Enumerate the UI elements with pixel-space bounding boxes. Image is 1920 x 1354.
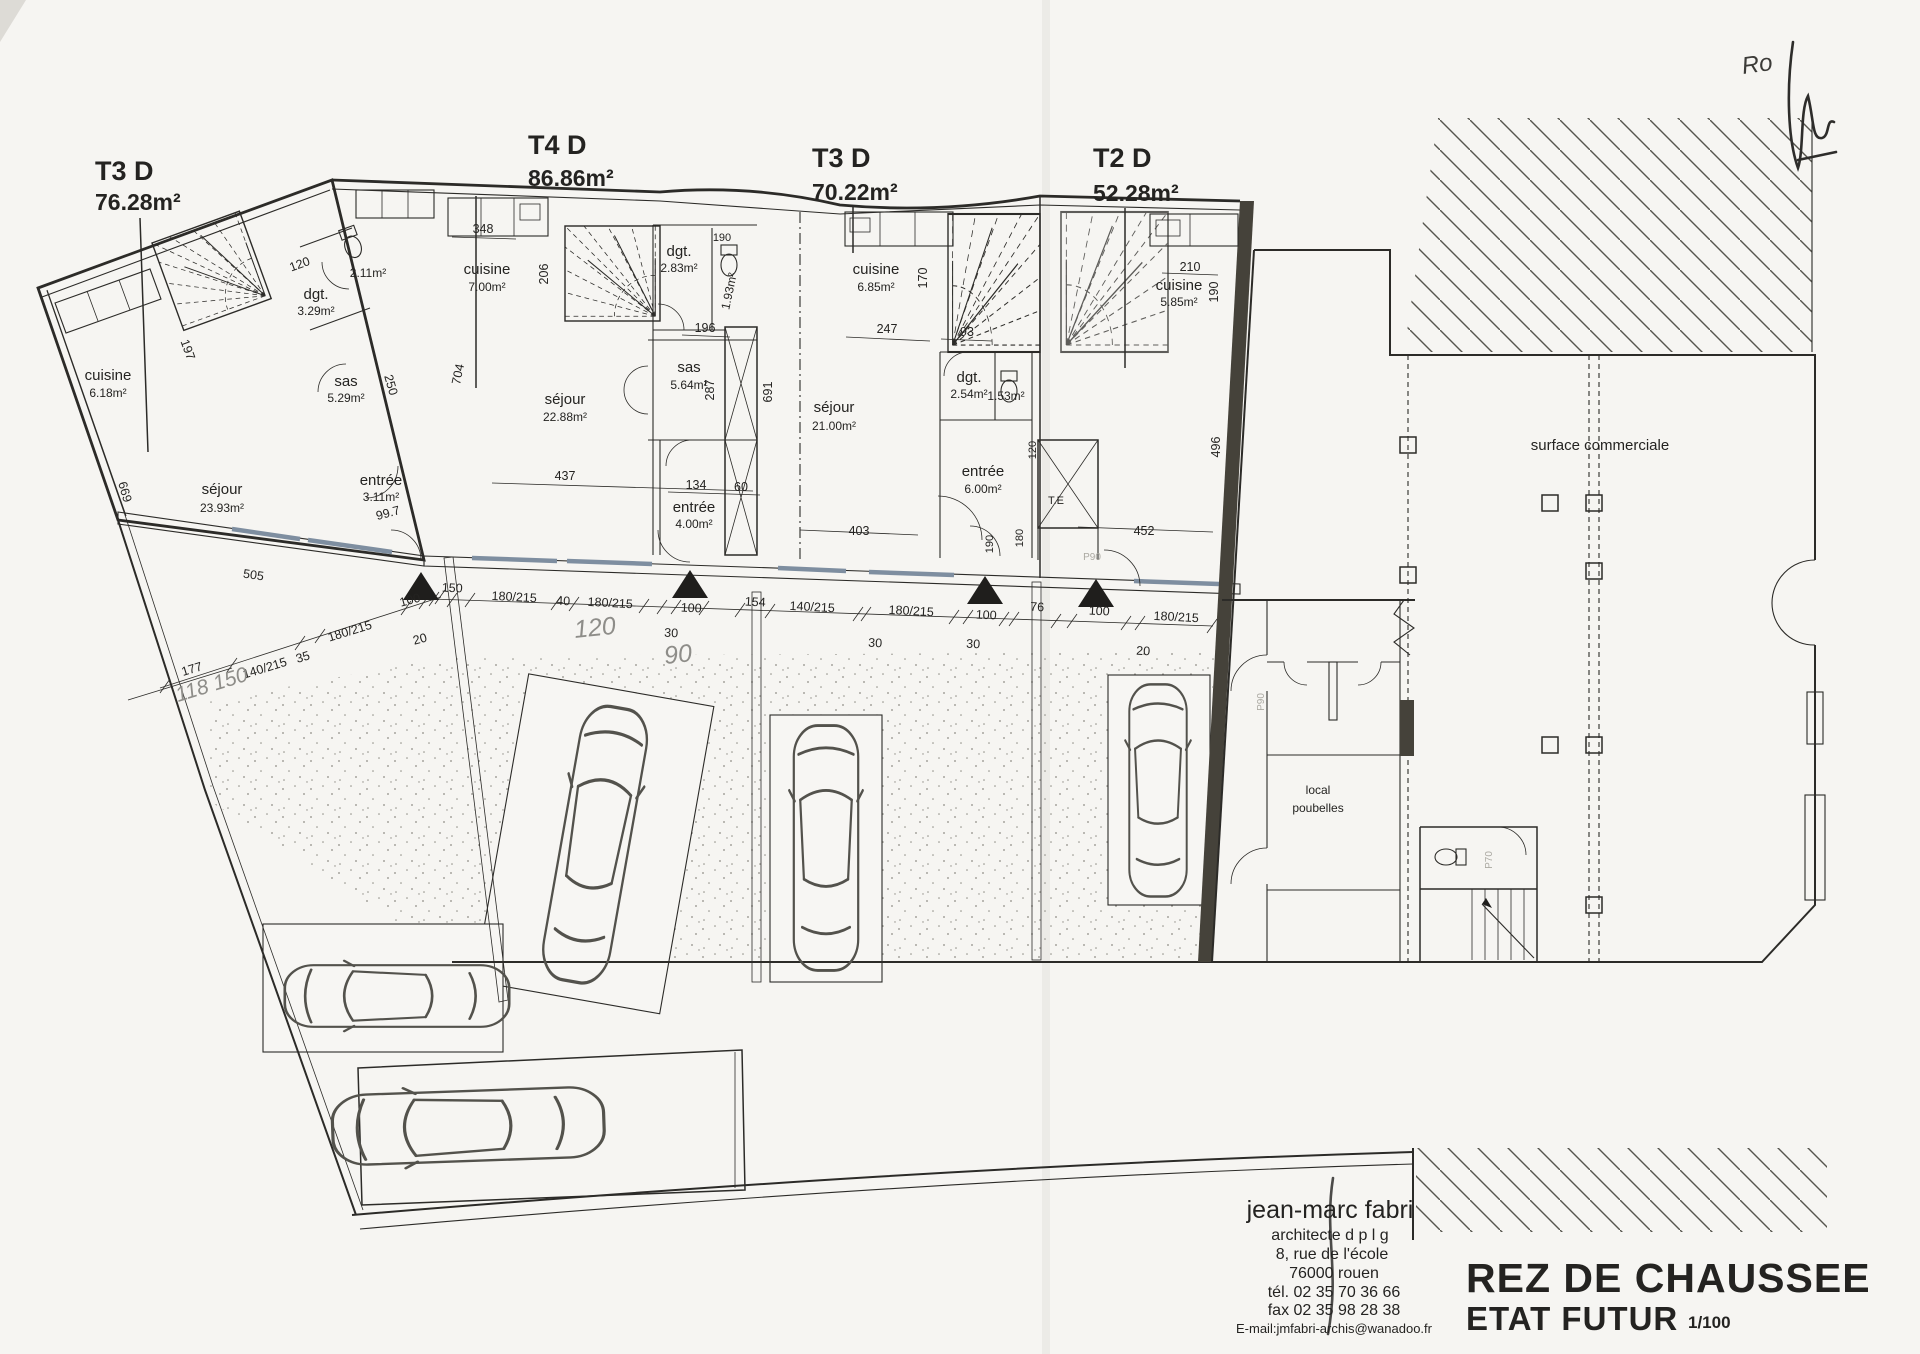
counter-dividers xyxy=(880,212,915,246)
dim-label: 180/215 xyxy=(1153,609,1199,625)
door-arc xyxy=(1498,827,1526,855)
dim-label: 100 xyxy=(398,591,422,610)
pencil-note: 90 xyxy=(663,639,694,670)
dim-label: 40 xyxy=(556,594,571,609)
unit-title-leaders xyxy=(140,196,1125,452)
dim-label: 20 xyxy=(1136,644,1151,659)
dim-label: 100 xyxy=(975,607,997,622)
unit3-interior xyxy=(800,212,1032,560)
room-name: cuisine xyxy=(1156,277,1203,294)
window xyxy=(567,561,652,564)
dim-label: 190 xyxy=(713,232,731,244)
room-name: séjour xyxy=(202,481,243,498)
cabinet-dividers xyxy=(382,190,408,218)
architect-name: jean-marc fabri xyxy=(1246,1196,1414,1224)
room-area: 6.00m² xyxy=(964,482,1001,496)
door-tag: P90 xyxy=(1083,552,1101,563)
dim-label: 100 xyxy=(1088,603,1110,618)
unit3-partitions xyxy=(940,352,1032,558)
signature-initials: Ro xyxy=(1740,49,1774,80)
room-area: 3.29m² xyxy=(297,304,334,318)
driveway-lane xyxy=(358,1050,745,1205)
commercial-outline xyxy=(1212,250,1815,962)
dim-label: 206 xyxy=(537,264,551,285)
floor-plan-svg: 140/215 35 180/215 100 20 150 180/215 40… xyxy=(0,0,1920,1354)
dim-label: 100 xyxy=(680,600,702,615)
pencil-note: 120 xyxy=(573,612,618,644)
architect-fax: fax 02 35 98 28 38 xyxy=(1268,1302,1401,1319)
dim-label: 140/215 xyxy=(241,655,288,682)
elevator-label: T.E xyxy=(1048,495,1064,507)
room-area: 2.11m² xyxy=(350,266,386,280)
double-entry-door-arc xyxy=(1772,560,1815,645)
parking-pad-3 xyxy=(1108,675,1210,905)
room-area: 6.18m² xyxy=(89,386,126,400)
room-area: 7.00m² xyxy=(468,280,505,294)
spiral-stair-unit4 xyxy=(1061,212,1168,352)
room-area: 4.00m² xyxy=(675,517,712,531)
duct-shaft-braces xyxy=(725,327,757,555)
unit2-code: T4 D xyxy=(528,130,587,160)
room-name: cuisine xyxy=(464,261,511,278)
room-name: sas xyxy=(677,359,700,376)
door-arc xyxy=(322,262,349,289)
dim-label: 197 xyxy=(178,337,198,361)
dim-label: 180/215 xyxy=(888,603,934,619)
architect-email: E-mail:jmfabri-archis@wanadoo.fr xyxy=(1236,1321,1433,1336)
entry-door-arc xyxy=(658,530,690,562)
car-lane xyxy=(331,1081,605,1170)
room-name: cuisine xyxy=(853,261,900,278)
wc-divider-post xyxy=(1329,662,1337,720)
room-name: sas xyxy=(334,373,357,390)
commercial-label: surface commerciale xyxy=(1531,437,1669,454)
room-name: dgt. xyxy=(303,286,328,303)
room-name: dgt. xyxy=(956,369,981,386)
architect-address2: 76000 rouen xyxy=(1289,1265,1379,1282)
unit4-surface: 52.28m² xyxy=(1093,180,1179,206)
dim-label: 120 xyxy=(287,254,311,274)
unit4-code: T2 D xyxy=(1093,143,1152,173)
parking-pad-4 xyxy=(263,924,503,1052)
double-door-arc xyxy=(624,366,648,414)
spiral-stair-unit1 xyxy=(152,211,271,330)
parking-pad-2 xyxy=(770,715,882,982)
service-door-arcs xyxy=(1231,655,1267,884)
bins-room-label-2: poubelles xyxy=(1292,801,1343,815)
counter-dividers xyxy=(87,280,130,321)
dim-label: 60 xyxy=(734,480,748,494)
room-name: séjour xyxy=(545,391,586,408)
room-area: 2.54m² xyxy=(950,387,987,401)
room-name: entrée xyxy=(360,472,403,489)
dim-label: 496 xyxy=(1209,437,1223,458)
room-area: 5.29m² xyxy=(327,391,364,405)
unit1-surface: 76.28m² xyxy=(95,189,181,215)
room-name: dgt. xyxy=(666,243,691,260)
dim-label: 505 xyxy=(242,567,265,584)
stair-arrow xyxy=(1482,904,1534,958)
stair-risers xyxy=(1472,889,1524,960)
dim-label: 704 xyxy=(449,362,467,385)
spiral-stair-unit2 xyxy=(565,226,660,321)
duct-shaft xyxy=(725,327,757,555)
structural-columns xyxy=(1400,437,1602,913)
kitchen-counter-unit1 xyxy=(55,269,161,333)
neighbor-hatch-area xyxy=(1404,118,1812,352)
toilet-icon xyxy=(721,245,737,276)
architect-address1: 8, rue de l'école xyxy=(1276,1246,1389,1263)
drawing-scale: 1/100 xyxy=(1688,1313,1731,1332)
interior-dim-labels: 120 197 669 250 505 99.7 348 206 704 190… xyxy=(115,222,1223,583)
masonry-pier xyxy=(1400,700,1414,756)
annex-walls xyxy=(1420,827,1537,962)
dim-label: 93 xyxy=(960,325,974,339)
sink-icon xyxy=(520,204,540,220)
gravel-texture xyxy=(208,652,1215,960)
dim-label: 140/215 xyxy=(789,599,835,615)
dim-label: 30 xyxy=(868,636,883,651)
page-corner-shadow xyxy=(0,0,26,42)
dim-label: 170 xyxy=(916,268,930,289)
service-partitions xyxy=(1267,600,1400,962)
door-arc xyxy=(666,440,692,466)
architect-title: architecte d p l g xyxy=(1271,1227,1388,1244)
room-area: 23.93m² xyxy=(200,501,244,515)
room-area: 5.85m² xyxy=(1160,295,1197,309)
room-area: 21.00m² xyxy=(812,419,856,433)
room-area: 3.11m² xyxy=(363,490,399,504)
unit1-code: T3 D xyxy=(95,156,154,186)
room-area: 6.85m² xyxy=(857,280,894,294)
dim-label: 669 xyxy=(115,480,134,504)
room-area: 1.93m² xyxy=(718,271,739,310)
dim-label: 190 xyxy=(1207,282,1221,303)
unit3-surface: 70.22m² xyxy=(812,179,898,205)
room-area: 1.53m² xyxy=(987,389,1024,403)
title-hatch-band xyxy=(1416,1148,1827,1232)
door-arc xyxy=(938,496,982,540)
room-area: 2.83m² xyxy=(660,261,697,275)
dim-label: 150 xyxy=(441,580,463,595)
room-name: entrée xyxy=(673,499,716,516)
drawing-subtitle: ETAT FUTUR xyxy=(1466,1300,1678,1337)
dim-label: 20 xyxy=(411,631,428,648)
title-block: jean-marc fabri architecte d p l g 8, ru… xyxy=(1236,1148,1871,1337)
dim-label: 30 xyxy=(966,637,981,652)
window xyxy=(778,568,846,571)
room-area: 22.88m² xyxy=(543,410,587,424)
wc-door-arcs xyxy=(1284,662,1381,685)
dim-label: 76 xyxy=(1030,600,1045,615)
dim-label: 180/215 xyxy=(491,589,537,605)
interior-dim-lines xyxy=(452,237,1218,535)
unit3-code: T3 D xyxy=(812,143,871,173)
dim-label: 403 xyxy=(849,524,870,538)
room-name: cuisine xyxy=(85,367,132,384)
dim-label: 437 xyxy=(555,469,576,483)
dim-label: 30 xyxy=(664,626,679,641)
dim-label: 134 xyxy=(686,478,707,492)
toilet-icon xyxy=(1435,849,1466,865)
door-arc xyxy=(658,304,684,330)
dim-label: 196 xyxy=(695,321,716,335)
door-tag: P70 xyxy=(1484,851,1495,869)
window xyxy=(1134,581,1219,584)
stair-arrowhead xyxy=(1482,898,1492,908)
dim-label: 35 xyxy=(294,648,311,665)
kitchen-cabinet xyxy=(356,190,434,218)
unit2-surface: 86.86m² xyxy=(528,165,614,191)
window xyxy=(472,558,557,561)
room-name: séjour xyxy=(814,399,855,416)
entry-triangle-3 xyxy=(967,576,1003,604)
door-tag: P90 xyxy=(1256,693,1267,711)
architect-phone: tél. 02 35 70 36 66 xyxy=(1268,1284,1401,1301)
entry-triangle-4 xyxy=(1078,579,1114,607)
bins-room-label-1: local xyxy=(1306,783,1331,797)
kitchen-counter-unit3 xyxy=(845,212,953,246)
dim-label: 247 xyxy=(877,322,898,336)
dim-label: 452 xyxy=(1134,524,1155,538)
dim-label: 154 xyxy=(744,594,766,609)
room-name: entrée xyxy=(962,463,1005,480)
dim-label: 180 xyxy=(1014,529,1026,547)
dim-label: 210 xyxy=(1180,260,1201,274)
dim-label: 190 xyxy=(984,535,996,553)
break-line-symbol xyxy=(1394,600,1414,655)
dim-label: 180/215 xyxy=(587,595,633,611)
window xyxy=(869,572,954,575)
room-area: 5.64m² xyxy=(670,378,707,392)
service-rooms xyxy=(1222,600,1537,962)
scanned-floor-plan-page: 140/215 35 180/215 100 20 150 180/215 40… xyxy=(0,0,1920,1354)
dim-label: 99.7 xyxy=(374,503,401,523)
dim-label: 180/215 xyxy=(326,618,373,645)
dim-label: 120 xyxy=(1027,441,1039,459)
drawing-title: REZ DE CHAUSSEE xyxy=(1466,1255,1871,1301)
dim-label: 691 xyxy=(761,382,775,403)
